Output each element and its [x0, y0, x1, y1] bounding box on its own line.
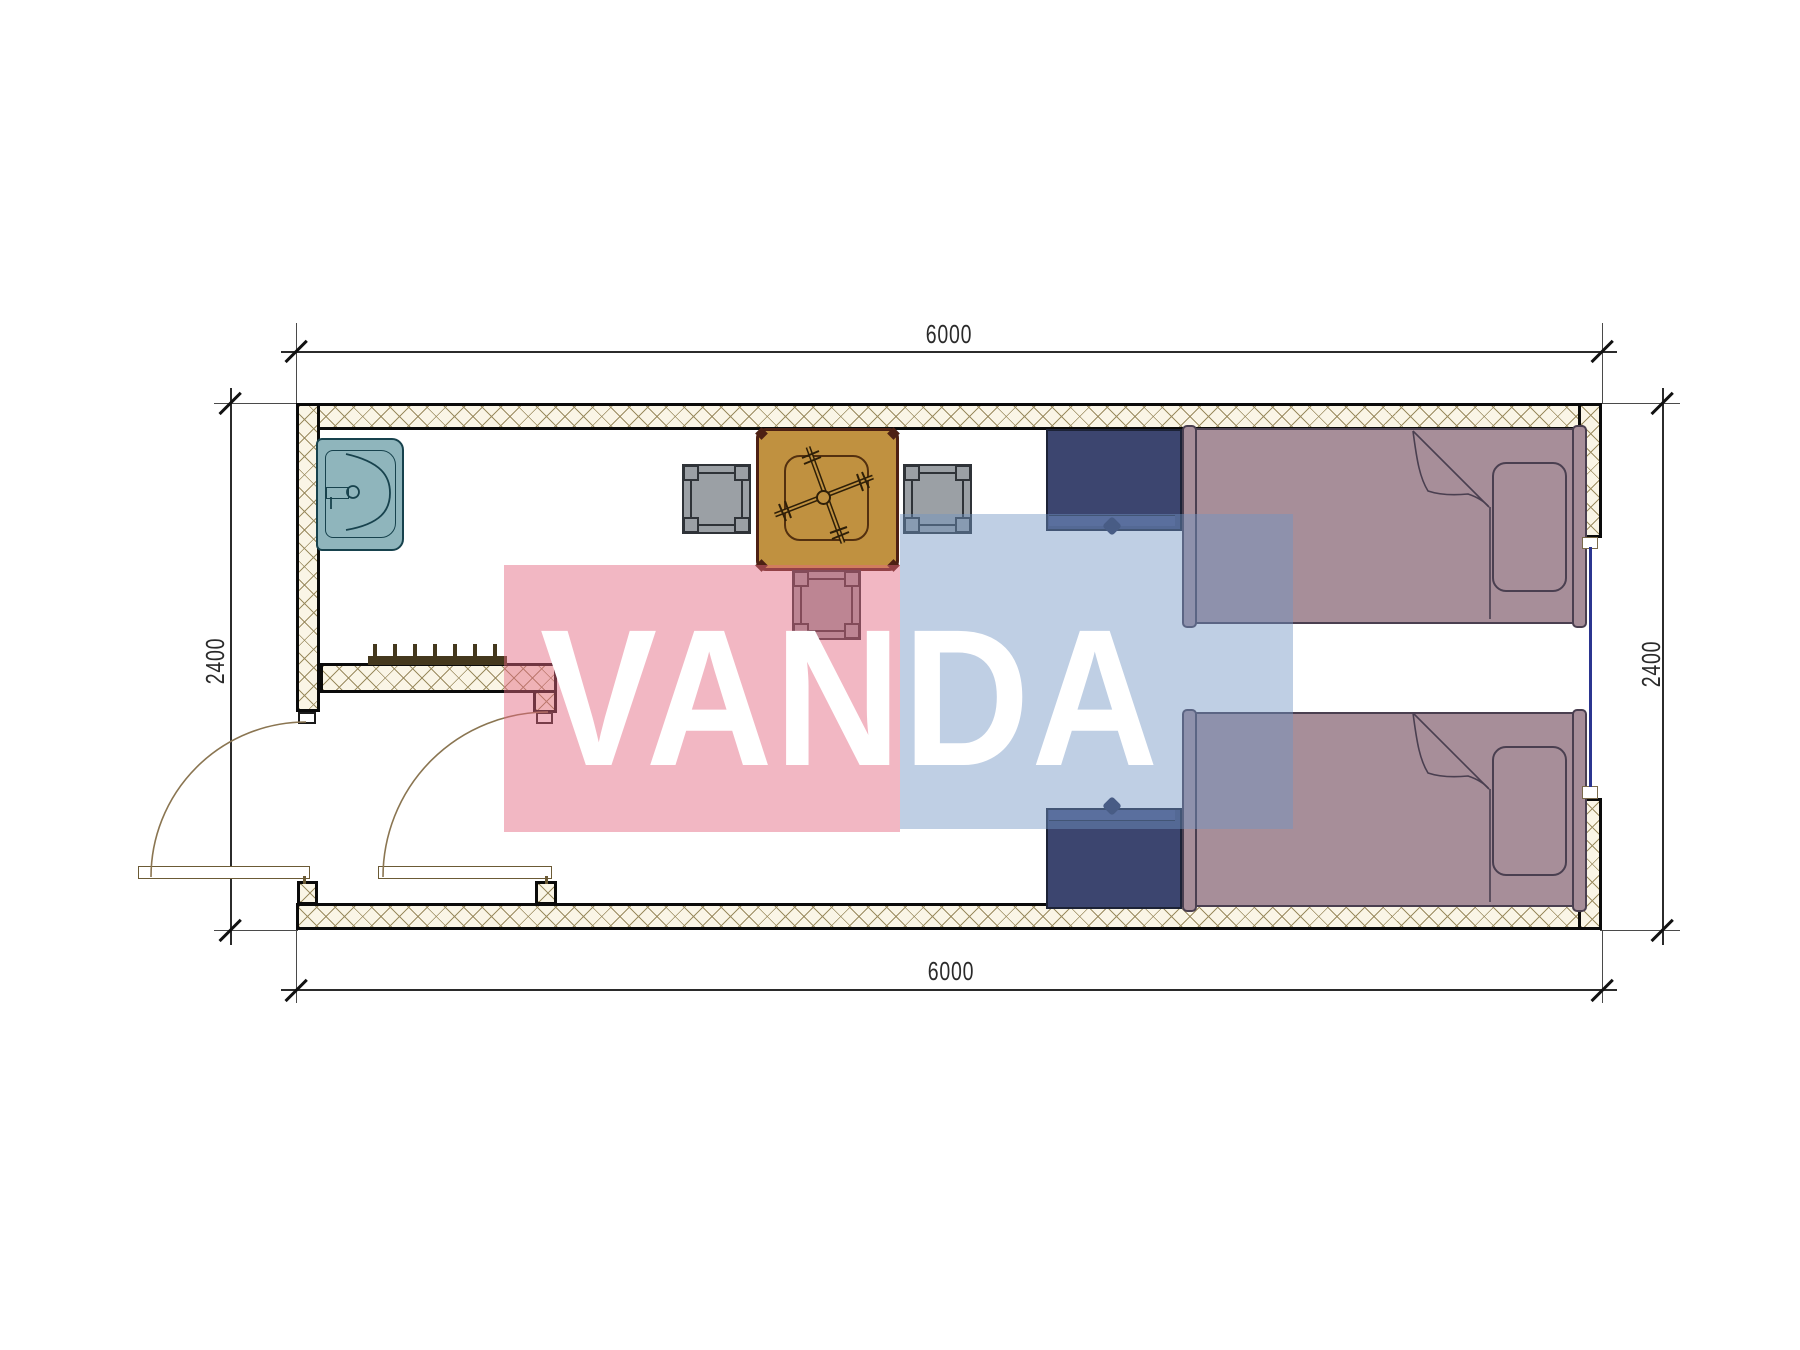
door-jamb-post-1 [297, 881, 318, 905]
dimension-label-left: 2400 [200, 631, 230, 691]
bed-bottom-pillow [1492, 746, 1567, 876]
extension-line [296, 323, 297, 403]
stool-leg [683, 465, 699, 481]
extension-line [1600, 930, 1680, 931]
stool-left [682, 464, 751, 534]
floor-plan: 6000 6000 2400 2400 [0, 0, 1800, 1350]
dimension-line-top [281, 351, 1617, 353]
wall-bottom [296, 903, 1602, 930]
door-leaf-1 [138, 866, 310, 879]
stool-leg [683, 517, 699, 533]
door-hinge-2 [545, 876, 548, 884]
extension-line [1600, 403, 1680, 404]
window-jamb-bottom [1582, 786, 1598, 799]
extension-line [1602, 323, 1603, 403]
door-jamb-post-2 [535, 881, 557, 905]
stool-leg [734, 517, 750, 533]
door-leaf-2 [378, 866, 552, 879]
stool-leg [904, 465, 920, 481]
dimension-line-left [230, 388, 232, 945]
bed-bottom-headboard [1572, 709, 1587, 912]
extension-line [1602, 930, 1603, 1003]
door-stop-1 [298, 712, 316, 724]
stool-leg [955, 465, 971, 481]
dimension-label-top: 6000 [919, 319, 979, 349]
door-swing-arc-1 [151, 722, 306, 877]
wall-top [296, 403, 1602, 430]
coat-hook [373, 644, 377, 657]
dimension-line-bottom [281, 989, 1617, 991]
stool-leg [734, 465, 750, 481]
extension-line [296, 930, 297, 1003]
table-top-inner [784, 455, 869, 541]
bed-top-headboard [1572, 425, 1587, 628]
dimension-label-right: 2400 [1636, 634, 1666, 694]
window-glass [1589, 547, 1592, 787]
dimension-label-bottom: 6000 [921, 956, 981, 986]
coat-hook [393, 644, 397, 657]
faucet-icon [326, 487, 349, 499]
door-hinge-1 [303, 876, 306, 884]
bed-top-pillow [1492, 462, 1567, 592]
watermark-text: VANDA [400, 598, 1300, 798]
